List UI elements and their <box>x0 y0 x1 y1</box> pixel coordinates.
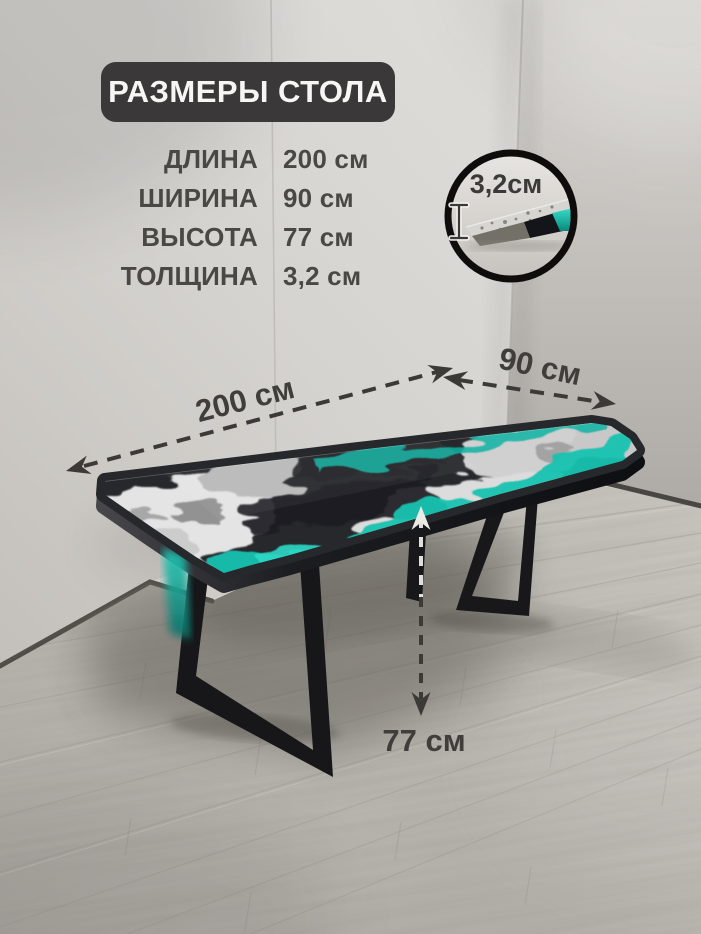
dimension-label: ВЫСОТА <box>0 222 258 253</box>
dimension-label: ТОЛЩИНА <box>0 261 258 292</box>
dimension-value: 3,2 см <box>283 261 361 292</box>
title-badge: РАЗМЕРЫ СТОЛА <box>101 62 395 122</box>
dimension-row-thickness: ТОЛЩИНА 3,2 см <box>0 257 400 296</box>
dimension-row-length: ДЛИНА 200 см <box>0 140 400 179</box>
height-annotation: 77 см <box>324 723 524 759</box>
dimension-value: 200 см <box>283 144 369 175</box>
product-dimensions-image: РАЗМЕРЫ СТОЛА ДЛИНА 200 см ШИРИНА 90 см … <box>0 0 701 934</box>
thickness-inset-label: 3,2см <box>436 169 576 200</box>
dimension-row-height: ВЫСОТА 77 см <box>0 218 400 257</box>
dimension-value: 90 см <box>283 183 354 214</box>
dimension-value: 77 см <box>283 222 354 253</box>
title-badge-label: РАЗМЕРЫ СТОЛА <box>108 74 388 110</box>
dimension-label: ДЛИНА <box>0 144 258 175</box>
dimension-row-width: ШИРИНА 90 см <box>0 179 400 218</box>
dimensions-list: ДЛИНА 200 см ШИРИНА 90 см ВЫСОТА 77 см Т… <box>0 140 400 296</box>
dimension-label: ШИРИНА <box>0 183 258 214</box>
